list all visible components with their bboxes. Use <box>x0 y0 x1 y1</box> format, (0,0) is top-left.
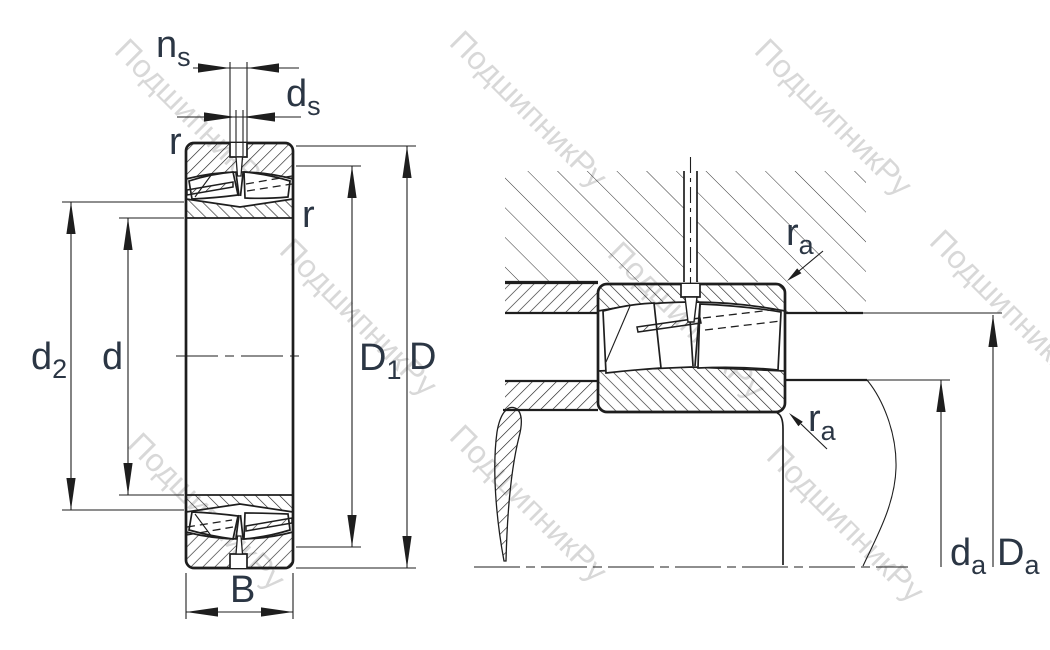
dim-label-r: r <box>169 121 182 163</box>
dim-label-ra: ra <box>808 398 837 446</box>
dim-label-d: d <box>102 336 123 378</box>
watermark-text: ПодшипникРу <box>443 23 614 194</box>
lube-hole <box>236 157 243 176</box>
lube-hole <box>236 536 243 554</box>
watermark-text: ПодшипникРу <box>760 437 931 608</box>
roller <box>603 303 661 373</box>
technical-drawing: ПодшипникРу ПодшипникРу ПодшипникРу Подш… <box>0 0 1050 650</box>
dim-label-D: D <box>409 336 436 378</box>
drawing-page: ПодшипникРу ПодшипникРу ПодшипникРу Подш… <box>0 0 1050 650</box>
lube-groove <box>230 554 247 568</box>
watermark-text: ПодшипникРу <box>923 222 1050 393</box>
housing-cover-section <box>505 284 598 313</box>
dim-label-da: da <box>950 532 987 580</box>
dim-label-Da: Da <box>997 532 1040 580</box>
watermark-text: ПодшипникРу <box>443 417 614 588</box>
lube-groove <box>681 284 700 297</box>
roller <box>698 304 781 370</box>
lube-groove <box>230 143 247 157</box>
inner-ring-section <box>598 368 785 412</box>
dim-label-d2: d2 <box>31 336 67 384</box>
shaft-spacer-section <box>505 381 598 410</box>
dim-label-B: B <box>230 569 255 611</box>
dim-label-r: r <box>302 194 315 236</box>
left-view-bearing-section <box>176 143 299 568</box>
housing-section <box>505 171 684 282</box>
watermark-text: ПодшипникРу <box>121 425 292 596</box>
dim-label-ns: ns <box>156 24 191 72</box>
shaft-fillet <box>777 413 783 429</box>
dim-label-ds: ds <box>286 73 321 121</box>
